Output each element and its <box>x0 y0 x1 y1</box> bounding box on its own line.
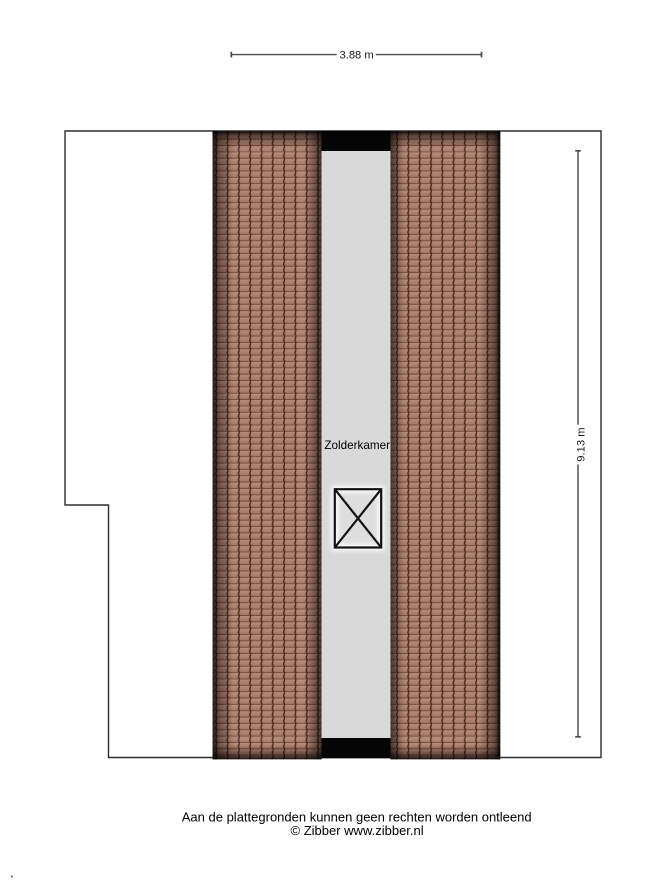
svg-text:9.13 m: 9.13 m <box>575 427 587 461</box>
svg-text:3.88 m: 3.88 m <box>339 50 373 62</box>
svg-text:© Zibber www.zibber.nl: © Zibber www.zibber.nl <box>291 823 424 838</box>
svg-text:Zolderkamer: Zolderkamer <box>324 439 390 452</box>
